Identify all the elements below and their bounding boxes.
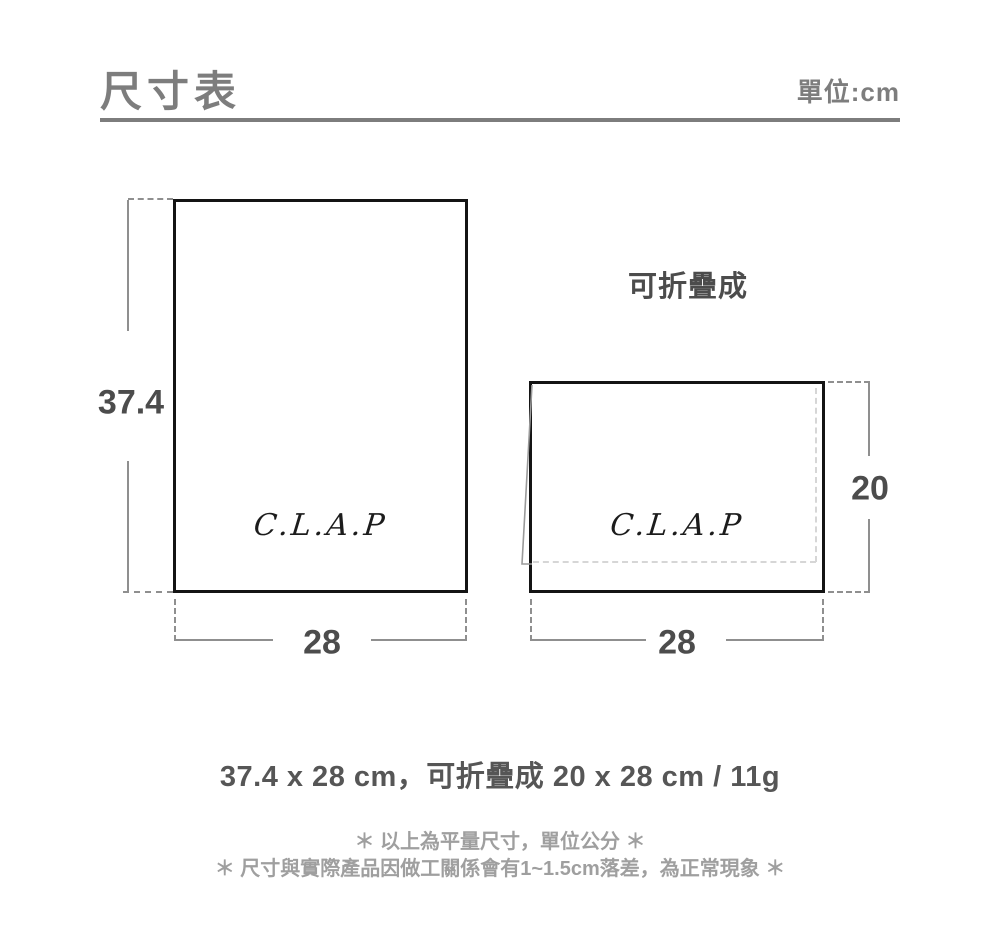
size-chart-page: 尺寸表 單位:cm C.L.A.P 37.4 28 可折疊成 C.L.A.P 2… — [0, 0, 1000, 937]
width-dim-line-right — [371, 639, 467, 641]
folded-width-dim-right — [726, 639, 824, 641]
title-divider — [100, 118, 900, 122]
fold-inner-dash-horizontal — [533, 561, 816, 563]
folded-dim-extension-top — [828, 381, 870, 383]
folded-width-extension-right — [822, 599, 824, 641]
folded-width-dim-left — [530, 639, 646, 641]
width-dim-extension-right — [465, 599, 467, 641]
unfolded-height-label: 37.4 — [98, 384, 164, 423]
folded-dim-extension-bottom — [828, 591, 870, 593]
dim-extension-bottom-left — [123, 591, 173, 593]
fold-edge-line — [519, 383, 537, 583]
width-dim-extension-left — [174, 599, 176, 641]
unfolded-item-rect: C.L.A.P — [173, 199, 468, 593]
folded-height-dim-lower — [868, 519, 870, 592]
folded-height-label: 20 — [851, 470, 889, 509]
height-dim-line-lower — [127, 461, 129, 592]
folded-height-dim-upper — [868, 383, 870, 456]
folded-item-rect: C.L.A.P — [529, 381, 825, 593]
folded-width-label: 28 — [658, 624, 696, 663]
folded-caption: 可折疊成 — [628, 263, 748, 305]
note-line-2: ＊ 尺寸與實際產品因做工關係會有1~1.5cm落差，為正常現象 ＊ — [0, 852, 1000, 881]
note-line-1: ＊ 以上為平量尺寸，單位公分 ＊ — [0, 825, 1000, 854]
folded-width-extension-left — [530, 599, 532, 641]
width-dim-line-left — [174, 639, 273, 641]
summary-text: 37.4 x 28 cm，可折疊成 20 x 28 cm / 11g — [0, 753, 1000, 795]
unit-label: 單位:cm — [797, 72, 900, 109]
height-dim-line-upper — [127, 200, 129, 331]
brand-logo-text-folded: C.L.A.P — [530, 508, 824, 543]
brand-logo-text: C.L.A.P — [174, 508, 467, 543]
page-title: 尺寸表 — [100, 58, 241, 119]
unfolded-width-label: 28 — [303, 624, 341, 663]
dim-extension-top-left — [128, 198, 173, 200]
